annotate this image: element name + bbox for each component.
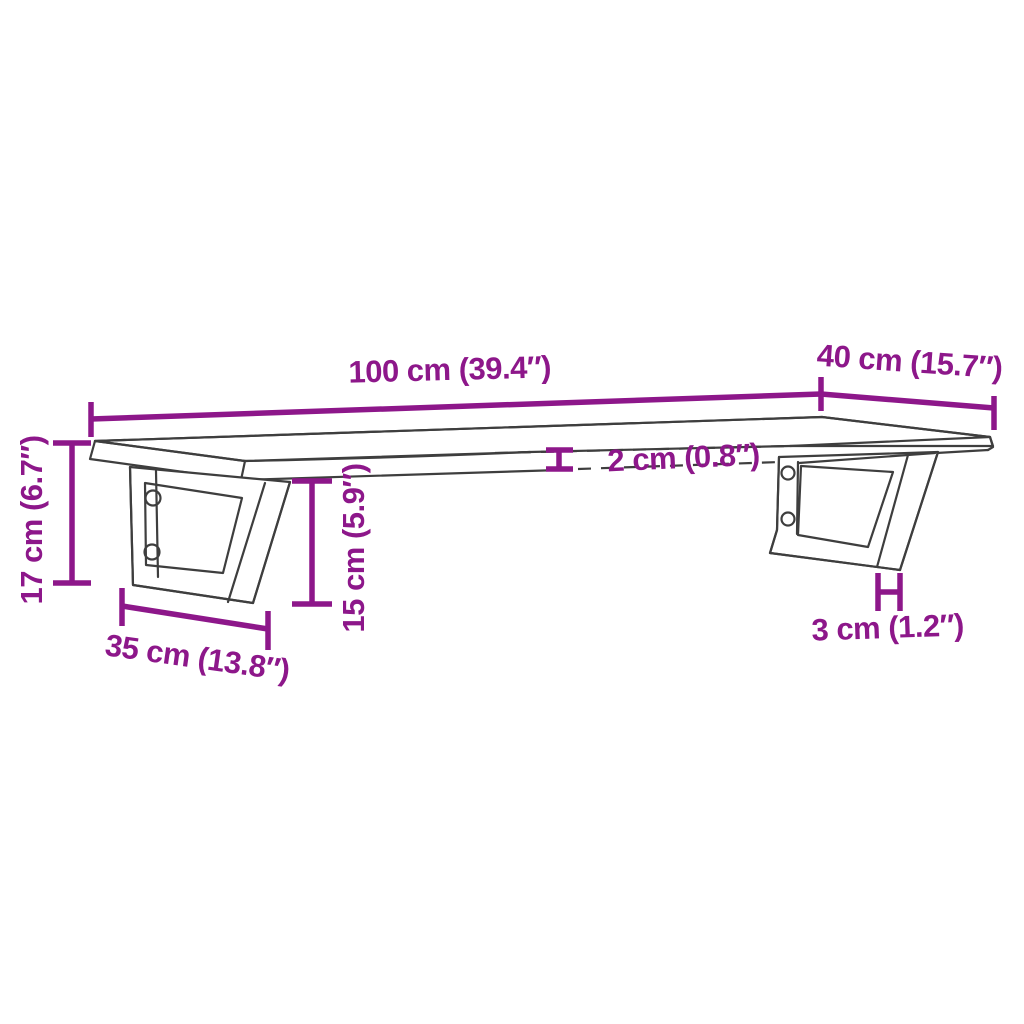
left-bracket <box>130 467 290 603</box>
shelf-depth-label: 40 cm (15.7″) <box>816 338 1004 386</box>
dimension-diagram: 100 cm (39.4″) 40 cm (15.7″) 2 cm (0.8″)… <box>0 0 1024 1024</box>
bracket-depth-label: 35 cm (13.8″) <box>103 627 292 688</box>
shelf-width-label: 100 cm (39.4″) <box>348 349 551 389</box>
shelf-thickness-label: 2 cm (0.8″) <box>607 437 761 479</box>
right-bracket-wall-plate <box>797 462 798 534</box>
width-dim-line <box>91 394 821 419</box>
total-height-label: 17 cm (6.7″) <box>14 435 49 604</box>
bracket-height-label: 15 cm (5.9″) <box>336 463 371 632</box>
shelf-dimension-drawing: 100 cm (39.4″) 40 cm (15.7″) 2 cm (0.8″)… <box>0 0 1024 1024</box>
depth-dim-line <box>821 394 994 408</box>
right-bracket <box>770 452 938 570</box>
left-bracket-body <box>130 467 290 603</box>
shelf-front-bottom-edge <box>241 470 560 480</box>
bracket-bar-width-label: 3 cm (1.2″) <box>811 607 965 647</box>
bracket-depth-dim-line <box>122 606 268 629</box>
